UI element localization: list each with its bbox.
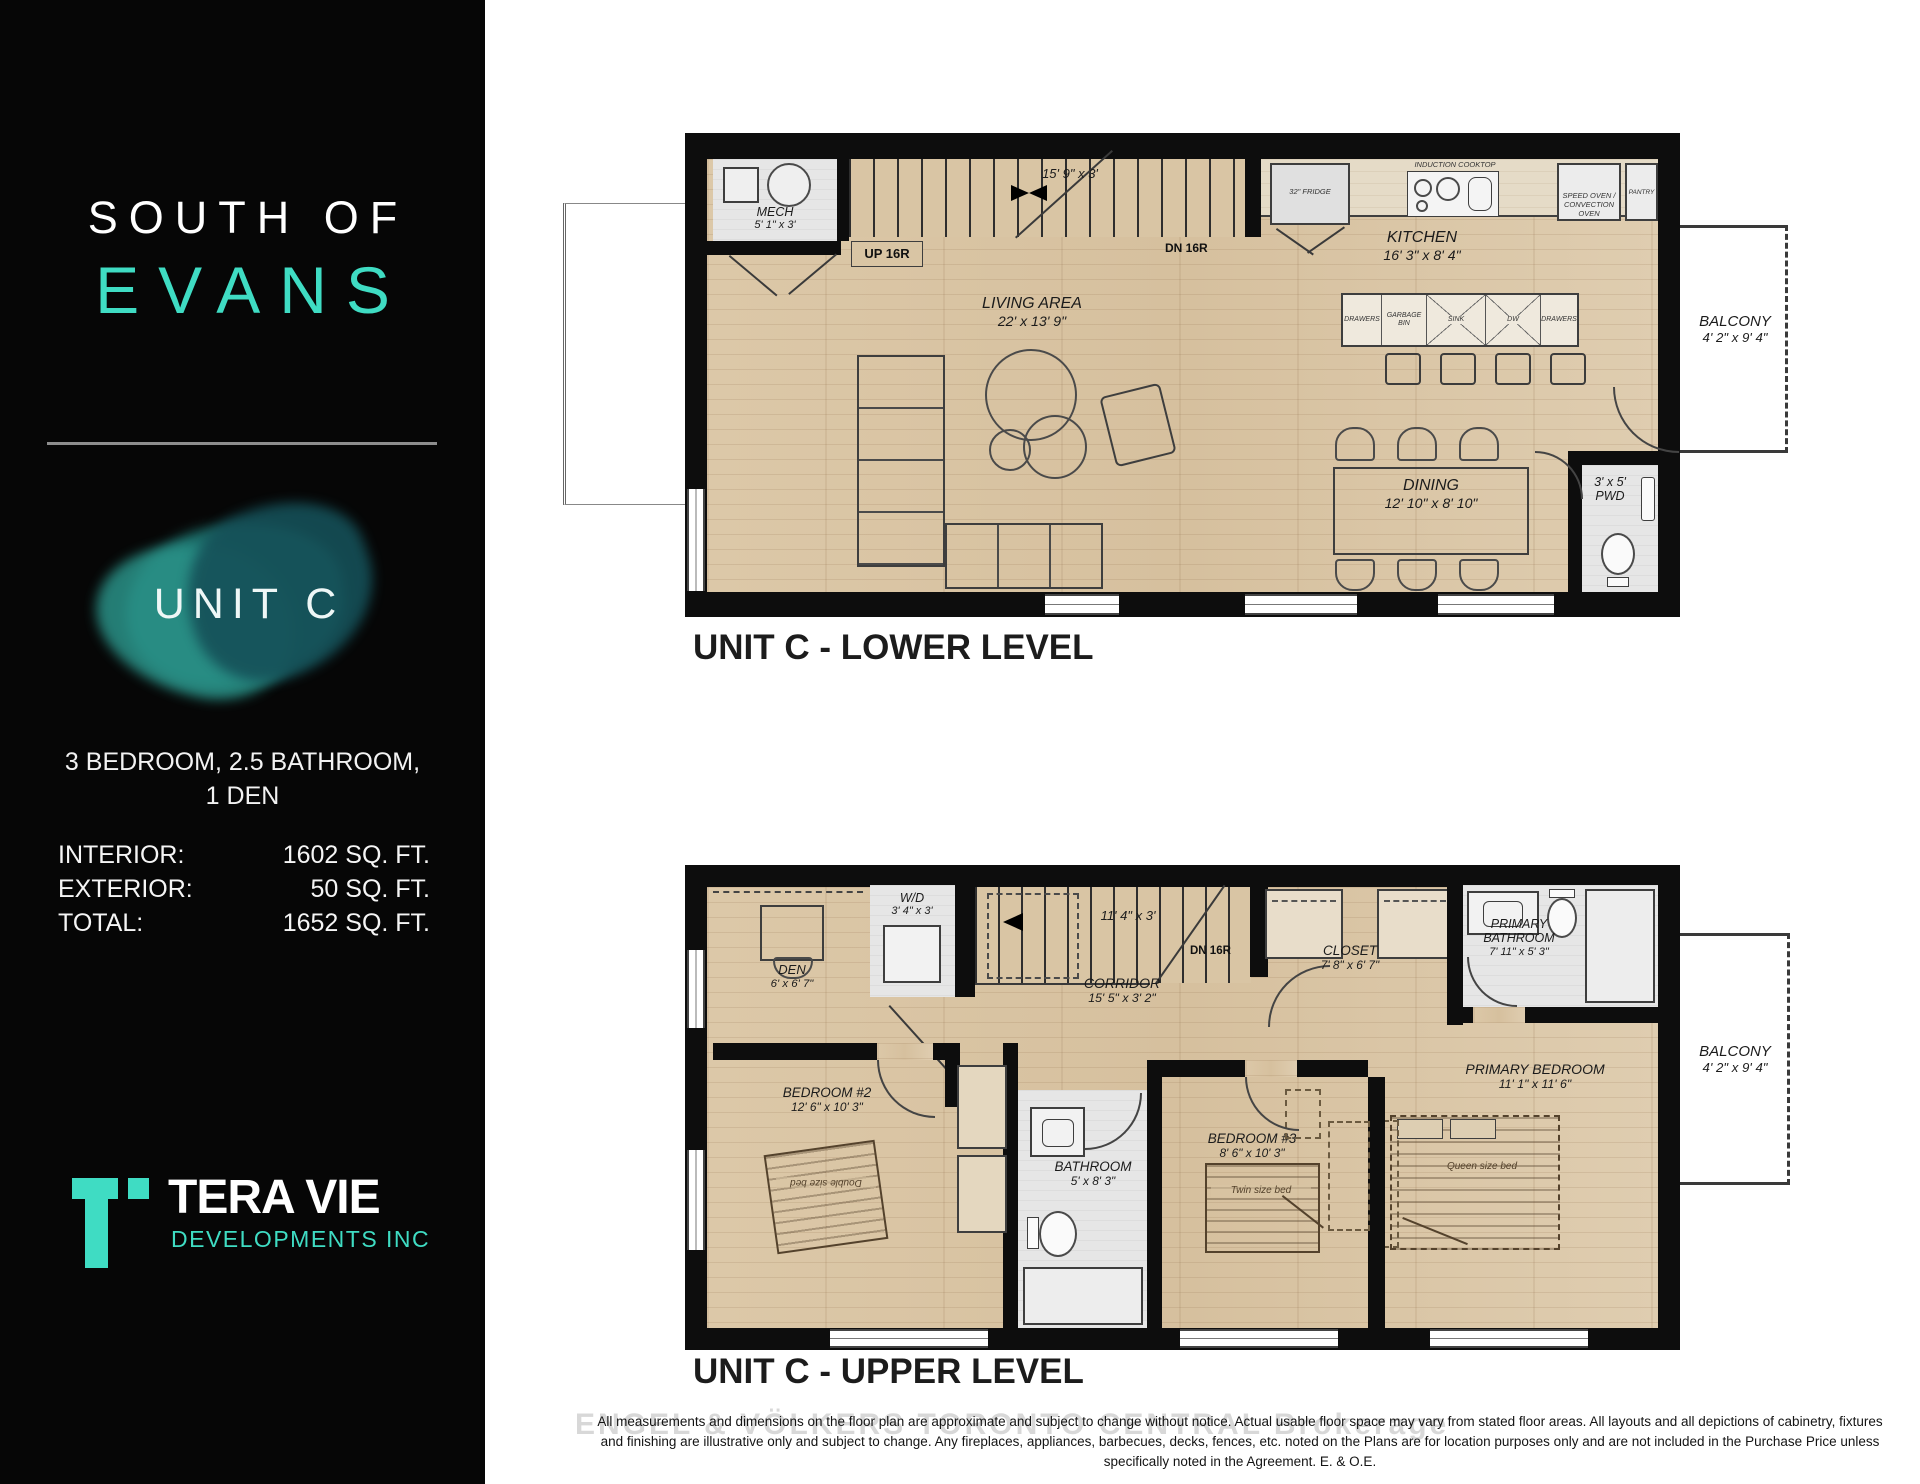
corridor-label: CORRIDOR 15' 5" x 3' 2" [1057, 975, 1187, 1005]
island-sink: SINK [1427, 295, 1486, 345]
island-dishwasher: DW [1486, 295, 1541, 345]
wd-wall [955, 885, 975, 997]
bedroom3-door-gap [1245, 1060, 1297, 1077]
bathroom-wall-right [1147, 1060, 1162, 1350]
window [830, 1329, 988, 1348]
toilet [1039, 1211, 1077, 1257]
dining-chair [1459, 427, 1499, 461]
island-drawers: DRAWERS [1343, 295, 1382, 345]
primary-bath-label: PRIMARY BATHROOM 7' 11" x 5' 3" [1455, 917, 1583, 958]
divider-line [47, 442, 437, 445]
pillow [1450, 1119, 1496, 1139]
bedroom2-closet-unit [957, 1065, 1007, 1149]
toilet-tank [1027, 1217, 1039, 1249]
dimension-arrow [1029, 185, 1047, 201]
induction-cooktop [1407, 171, 1499, 217]
dining-chair [1459, 559, 1499, 591]
pwd-toilet [1601, 533, 1635, 575]
coffee-table [989, 429, 1031, 471]
double-bed-label: Double size bed [776, 1177, 876, 1188]
developer-logo: TERA VIE DEVELOPMENTS INC [72, 1168, 442, 1278]
unit-badge-blob: UNIT C [95, 485, 395, 730]
bar-stool [1495, 353, 1531, 385]
cooktop-label: INDUCTION COOKTOP [1375, 160, 1535, 169]
upper-balcony-label: BALCONY 4' 2" x 9' 4" [1688, 1043, 1782, 1075]
dining-chair [1397, 559, 1437, 591]
wardrobe-dashed [1328, 1121, 1370, 1231]
stat-label: EXTERIOR: [58, 872, 193, 906]
primary-bath-door-gap [1473, 1007, 1525, 1023]
toilet-tank [1549, 889, 1575, 898]
water-tank [767, 163, 811, 207]
summary-line1: 3 BEDROOM, 2.5 BATHROOM, [0, 745, 485, 779]
pwd-label: 3' x 5' PWD [1583, 475, 1637, 504]
porch-outline [563, 203, 687, 505]
wd-label: W/D 3' 4" x 3' [871, 891, 953, 918]
double-bed: Double size bed [764, 1140, 889, 1255]
project-title-line1: SOUTH OF [0, 192, 485, 244]
hanger-rod [1272, 900, 1336, 902]
dining-chair [1397, 427, 1437, 461]
unit-badge-label: UNIT C [95, 580, 395, 629]
stat-row-interior: INTERIOR: 1602 SQ. FT. [58, 838, 430, 872]
fridge: 32" FRIDGE [1270, 163, 1350, 225]
mech-wall [837, 159, 849, 241]
bathroom-sink [1042, 1119, 1074, 1147]
washer-dryer [883, 925, 941, 983]
speed-oven: SPEED OVEN / CONVECTION OVEN [1557, 163, 1621, 221]
living-area-label: LIVING AREA 22' x 13' 9" [967, 295, 1097, 330]
disclaimer: All measurements and dimensions on the f… [540, 1412, 1920, 1472]
window [687, 950, 705, 1028]
upper-level-caption: UNIT C - UPPER LEVEL [693, 1352, 1084, 1392]
hanger-rod [1384, 900, 1446, 902]
unit-summary: 3 BEDROOM, 2.5 BATHROOM, 1 DEN [0, 745, 485, 813]
lower-level-plan: MECH 5' 1" x 3' 15' 9" x 3' UP 16R DN 16… [685, 133, 1790, 620]
furnace [723, 167, 759, 203]
logo-subtitle: DEVELOPMENTS INC [171, 1226, 430, 1253]
pantry: PANTRY [1625, 163, 1658, 221]
up-16r-tag: UP 16R [851, 241, 923, 267]
pillow [1397, 1119, 1443, 1139]
window [687, 489, 705, 591]
kitchen-island: DRAWERS GARBAGE BIN SINK DW DRAWERS [1341, 293, 1579, 347]
lower-balcony-label: BALCONY 4' 2" x 9' 4" [1688, 313, 1782, 345]
sidebar: SOUTH OF EVANS UNIT C 3 BEDROOM, 2.5 BAT… [0, 0, 485, 1484]
bathroom-label: BATHROOM 5' x 8' 3" [1037, 1159, 1149, 1188]
stat-row-exterior: EXTERIOR: 50 SQ. FT. [58, 872, 430, 906]
upper-level-plan: DEN 6' x 6' 7" W/D 3' 4" x 3' 11' 4" x 3… [685, 865, 1790, 1350]
pwd-wall [1568, 451, 1658, 465]
stat-row-total: TOTAL: 1652 SQ. FT. [58, 906, 430, 940]
bathtub [1023, 1267, 1143, 1325]
den-desk [760, 905, 824, 961]
bathroom-vanity [1030, 1107, 1085, 1157]
dn-16r-tag: DN 16R [1165, 241, 1245, 255]
den-dashed-line [713, 891, 863, 893]
stair-arrow [1003, 913, 1023, 931]
bar-stool [1550, 353, 1586, 385]
den-label: DEN 6' x 6' 7" [747, 963, 837, 991]
lower-level-caption: UNIT C - LOWER LEVEL [693, 628, 1094, 668]
island-garbage: GARBAGE BIN [1382, 295, 1427, 345]
window [1430, 1329, 1588, 1348]
disclaimer-line3: specifically noted in the Agreement. E. … [540, 1452, 1920, 1472]
pwd-toilet-tank [1607, 577, 1629, 587]
window [1438, 594, 1554, 615]
bedroom2-closet-unit [957, 1155, 1007, 1233]
dining-chair [1335, 559, 1375, 591]
burner [1414, 179, 1432, 197]
window [1045, 594, 1119, 615]
window [687, 1150, 705, 1250]
mech-bottom-wall [707, 241, 841, 255]
shower [1585, 889, 1655, 1003]
logo-t-stem [85, 1178, 108, 1268]
primary-bedroom-label: PRIMARY BEDROOM 11' 1" x 11' 6" [1457, 1061, 1613, 1091]
project-title-line2: EVANS [0, 252, 485, 328]
stat-value: 1602 SQ. FT. [283, 838, 430, 872]
kitchen-label: KITCHEN 16' 3" x 8' 4" [1357, 229, 1487, 264]
sofa-chaise [945, 523, 1103, 589]
twin-bed [1205, 1163, 1320, 1253]
summary-line2: 1 DEN [0, 779, 485, 813]
queen-bed-label: Queen size bed [1427, 1161, 1537, 1173]
bedroom3-primary-wall [1368, 1077, 1385, 1350]
twin-bed-label: Twin size bed [1211, 1185, 1311, 1197]
disclaimer-line1: All measurements and dimensions on the f… [540, 1412, 1920, 1432]
floorplan-brochure: { "colors": { "accent": "#3fdcc3", "wood… [0, 0, 1920, 1484]
bar-stool [1440, 353, 1476, 385]
sofa [857, 355, 945, 567]
window [1245, 594, 1357, 615]
stair-open-below [987, 893, 1079, 979]
closet-label: CLOSET 7' 8" x 6' 7" [1283, 943, 1417, 972]
bedroom2-door-gap [877, 1043, 933, 1060]
coffee-table [1023, 415, 1087, 479]
disclaimer-line2: and finishing are illustrative only and … [540, 1432, 1920, 1452]
logo-name: TERA VIE [168, 1170, 380, 1225]
logo-t-square [128, 1178, 149, 1199]
burner-oval [1468, 177, 1492, 211]
pwd-sink [1641, 477, 1655, 521]
dining-label: DINING 12' 10" x 8' 10" [1349, 477, 1513, 512]
island-drawers: DRAWERS [1541, 295, 1577, 345]
stat-label: INTERIOR: [58, 838, 184, 872]
stat-value: 50 SQ. FT. [311, 872, 430, 906]
stair-dimension-label: 15' 9" x 3' [1015, 167, 1125, 182]
bedroom2-label: BEDROOM #2 12' 6" x 10' 3" [745, 1085, 909, 1114]
stair-kitchen-wall [1245, 159, 1261, 237]
area-stats: INTERIOR: 1602 SQ. FT. EXTERIOR: 50 SQ. … [58, 838, 430, 940]
burner [1416, 200, 1428, 212]
stat-label: TOTAL: [58, 906, 143, 940]
burner [1436, 177, 1460, 201]
upper-stair-dimension: 11' 4" x 3' [1083, 909, 1173, 924]
dining-chair [1335, 427, 1375, 461]
dimension-arrow [1011, 185, 1029, 201]
stat-value: 1652 SQ. FT. [283, 906, 430, 940]
window [1180, 1329, 1338, 1348]
bar-stool [1385, 353, 1421, 385]
mech-label: MECH 5' 1" x 3' [713, 205, 837, 232]
